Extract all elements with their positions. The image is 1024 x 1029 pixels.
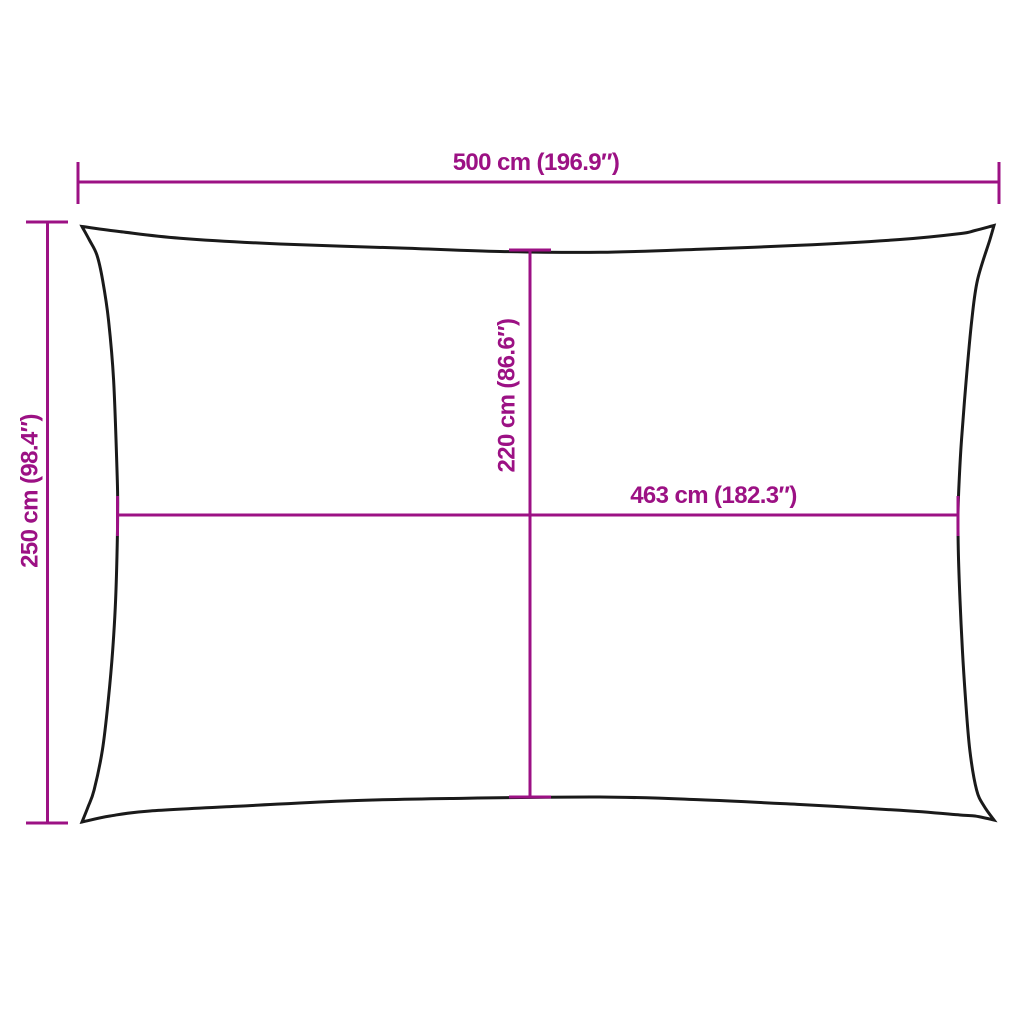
svg-text:500 cm (196.9″): 500 cm (196.9″) <box>453 149 620 176</box>
svg-text:220 cm (86.6″): 220 cm (86.6″) <box>494 319 521 473</box>
svg-text:250 cm (98.4″): 250 cm (98.4″) <box>17 414 44 568</box>
svg-text:463 cm (182.3″): 463 cm (182.3″) <box>630 482 797 509</box>
